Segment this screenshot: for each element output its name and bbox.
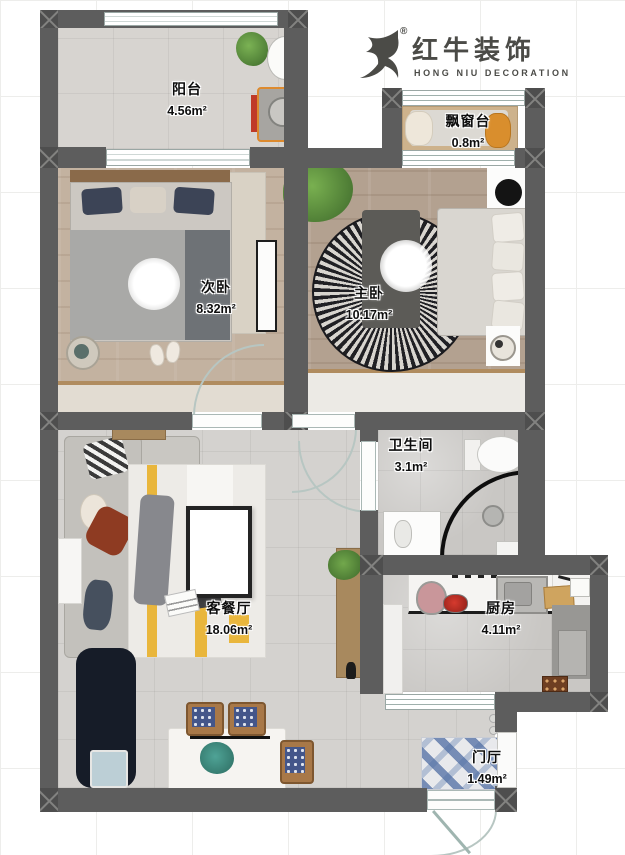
wall-kitchen-left: [360, 575, 383, 694]
room-label-balcony: 阳台 4.56m²: [137, 79, 237, 118]
room-label-entry: 门厅 1.49m²: [437, 747, 537, 786]
room-area: 1.49m²: [437, 772, 537, 786]
master-side-table: [490, 335, 516, 361]
wall-bay-bottom-stub: [515, 148, 525, 168]
bedside-table-plant: [74, 344, 89, 359]
room-name: 阳台: [137, 79, 237, 99]
room-name: 飘窗台: [418, 111, 518, 131]
room-area: 8.32m²: [166, 302, 266, 316]
refrigerator-door: [558, 630, 587, 676]
dining-table-plant: [200, 742, 234, 774]
wall-entry-right-stub: [495, 712, 517, 732]
room-label-second-bedroom: 次卧 8.32m²: [166, 277, 266, 316]
wall-corner: [382, 88, 402, 108]
wall-left: [40, 10, 58, 812]
wall-balcony-bottom-right: [250, 147, 308, 168]
brand-logo: ® 红牛装饰 HONG NIU DECORATION: [358, 26, 568, 86]
balcony-top-window: [104, 12, 278, 26]
wall-right: [525, 88, 545, 432]
wall-kitchen-top: [360, 555, 608, 575]
wall-corner: [525, 88, 545, 108]
wall-kitchen-right: [590, 555, 608, 712]
second-bed-pillow-light: [130, 187, 166, 213]
vanity-sink: [394, 520, 412, 548]
wall-bathroom-left-lower: [360, 510, 378, 557]
second-bed-headboard: [70, 170, 230, 182]
sofa-side-table: [58, 538, 82, 604]
wall-corner: [525, 148, 545, 168]
wall-bathroom-right: [518, 430, 545, 557]
room-area: 0.8m²: [418, 136, 518, 150]
floor-plan-canvas: 阳台 4.56m² 飘窗台 0.8m² 次卧 8.32m² 主卧 10.17m²…: [0, 0, 625, 855]
dining-chair-2-cushion: [234, 707, 257, 727]
wall-corner: [590, 692, 608, 712]
room-area: 10.17m²: [319, 308, 419, 322]
balcony-slider-door: [106, 149, 250, 166]
sideboard-vase: [346, 662, 356, 679]
bay-inner-window: [402, 150, 515, 166]
second-bedroom-door: [192, 414, 262, 428]
master-bed-pillow-2: [491, 241, 525, 272]
kitchen-small-appliance: [570, 578, 590, 597]
wall-bedroom-south-3: [355, 412, 527, 430]
master-bed-pillow-3: [491, 271, 525, 302]
second-bed-pillow-dark-right: [173, 187, 215, 216]
wall-corner: [40, 147, 58, 168]
wall-corner: [525, 412, 545, 430]
coffee-table: [186, 506, 252, 598]
kitchen-slider-door: [385, 694, 495, 710]
wall-master-top: [306, 148, 402, 168]
rice-cooker: [416, 581, 447, 615]
wall-corner: [590, 555, 608, 575]
wall-corner: [360, 555, 383, 575]
master-bed-pillow-1: [491, 212, 525, 244]
entrance-door: [427, 790, 495, 810]
room-area: 18.06m²: [179, 623, 279, 637]
room-name: 主卧: [319, 283, 419, 303]
wall-corner: [40, 412, 58, 430]
master-side-table-cup: [495, 340, 503, 348]
room-name: 卫生间: [361, 435, 461, 455]
tv: [90, 750, 128, 788]
room-label-bathroom: 卫生间 3.1m²: [361, 435, 461, 474]
room-area: 4.56m²: [137, 104, 237, 118]
wall-corner: [40, 788, 58, 812]
second-bed-pillow-dark-left: [81, 187, 123, 216]
bathroom-vanity: [383, 511, 441, 556]
kitchen-left-cabinet: [383, 604, 403, 694]
dining-chair-3-cushion: [285, 747, 305, 773]
room-area: 3.1m²: [361, 460, 461, 474]
room-name: 门厅: [437, 747, 537, 767]
room-name: 次卧: [166, 277, 266, 297]
rug-blob-gray: [133, 494, 175, 606]
bay-top-window: [402, 90, 525, 106]
wall-bedroom-south-1: [40, 412, 192, 430]
master-bedroom-door: [292, 414, 355, 428]
room-area: 4.11m²: [446, 623, 556, 637]
room-label-bay-window: 飘窗台 0.8m²: [418, 111, 518, 150]
registered-trademark: ®: [400, 26, 407, 37]
master-bedroom-closet-band: [308, 373, 525, 412]
washer-accent-strip: [251, 95, 257, 132]
wall-corner: [40, 10, 58, 28]
room-label-master-bedroom: 主卧 10.17m²: [319, 283, 419, 322]
wall-bottom: [40, 788, 427, 812]
wall-corner: [288, 10, 308, 28]
master-bedroom-closet-edge: [308, 369, 525, 373]
room-label-kitchen: 厨房 4.11m²: [446, 598, 556, 637]
wall-corner: [495, 788, 517, 812]
dining-chair-1-cushion: [192, 707, 215, 727]
balcony-plant: [236, 32, 268, 66]
room-name: 厨房: [446, 598, 556, 618]
bull-icon: [358, 28, 404, 82]
kitchen-crate: [542, 676, 568, 692]
wall-mid-vertical: [284, 10, 308, 430]
room-label-living-dining: 客餐厅 18.06m²: [179, 598, 279, 637]
brand-name-en: HONG NIU DECORATION: [414, 68, 571, 78]
brand-name-cn: 红牛装饰: [412, 30, 536, 67]
room-name: 客餐厅: [179, 598, 279, 618]
black-round-stool: [495, 179, 522, 206]
dining-table-runner: [190, 736, 270, 739]
